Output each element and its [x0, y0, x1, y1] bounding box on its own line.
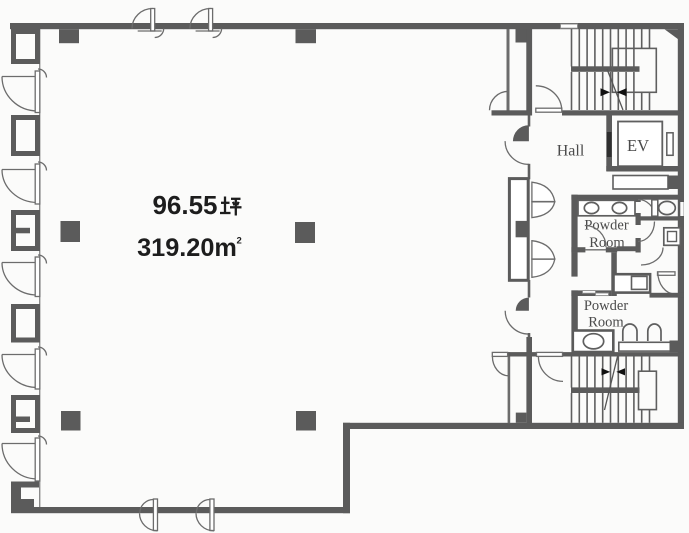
svg-text:Hall: Hall	[557, 143, 585, 160]
svg-text:Powder: Powder	[584, 218, 628, 234]
svg-text:2: 2	[237, 236, 242, 247]
svg-text:Powder: Powder	[584, 298, 628, 314]
svg-text:EV: EV	[627, 136, 649, 155]
svg-text:96.55: 96.55	[152, 190, 217, 220]
svg-text:Room: Room	[588, 315, 624, 331]
svg-text:319.20m: 319.20m	[137, 234, 237, 262]
